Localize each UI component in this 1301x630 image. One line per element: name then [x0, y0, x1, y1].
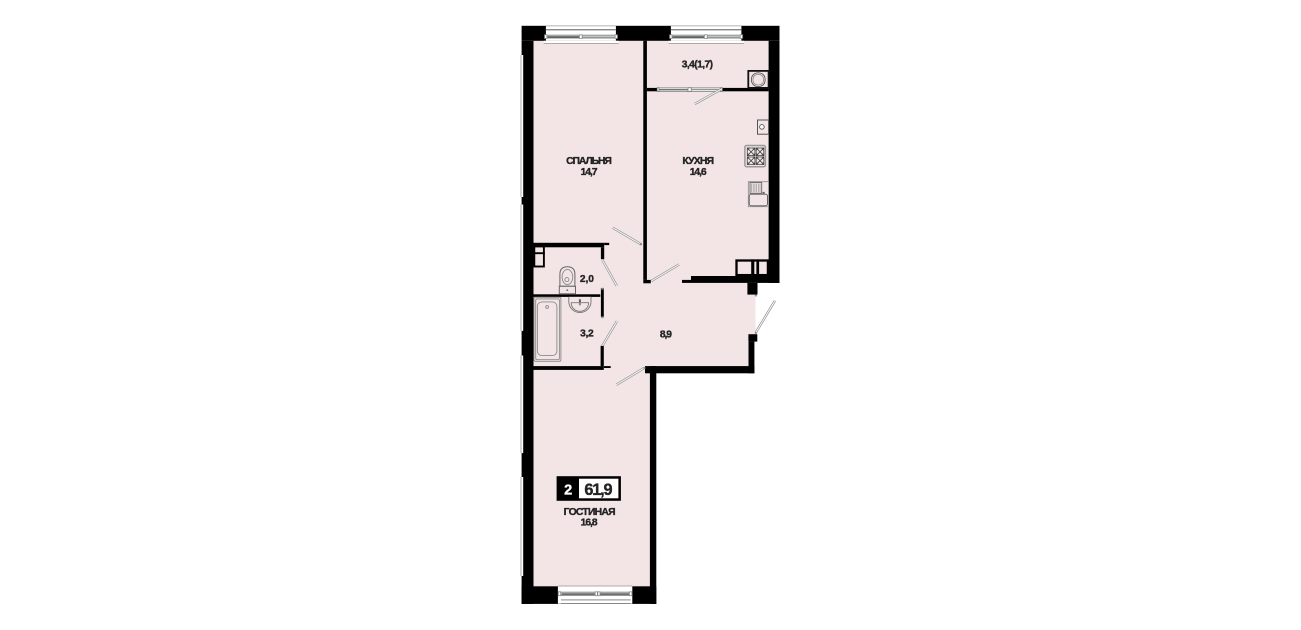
svg-text:14,6: 14,6 — [690, 167, 707, 178]
svg-text:8,9: 8,9 — [660, 330, 672, 341]
svg-text:КУХНЯ: КУХНЯ — [682, 156, 714, 167]
svg-text:16,8: 16,8 — [581, 518, 598, 529]
svg-text:2: 2 — [564, 483, 572, 499]
svg-text:СПАЛЬНЯ: СПАЛЬНЯ — [566, 156, 612, 167]
svg-text:3,4(1,7): 3,4(1,7) — [682, 60, 713, 71]
svg-text:61,9: 61,9 — [584, 481, 612, 499]
svg-text:14,7: 14,7 — [581, 167, 598, 178]
svg-text:3,2: 3,2 — [580, 329, 594, 340]
svg-text:2,0: 2,0 — [580, 274, 594, 285]
